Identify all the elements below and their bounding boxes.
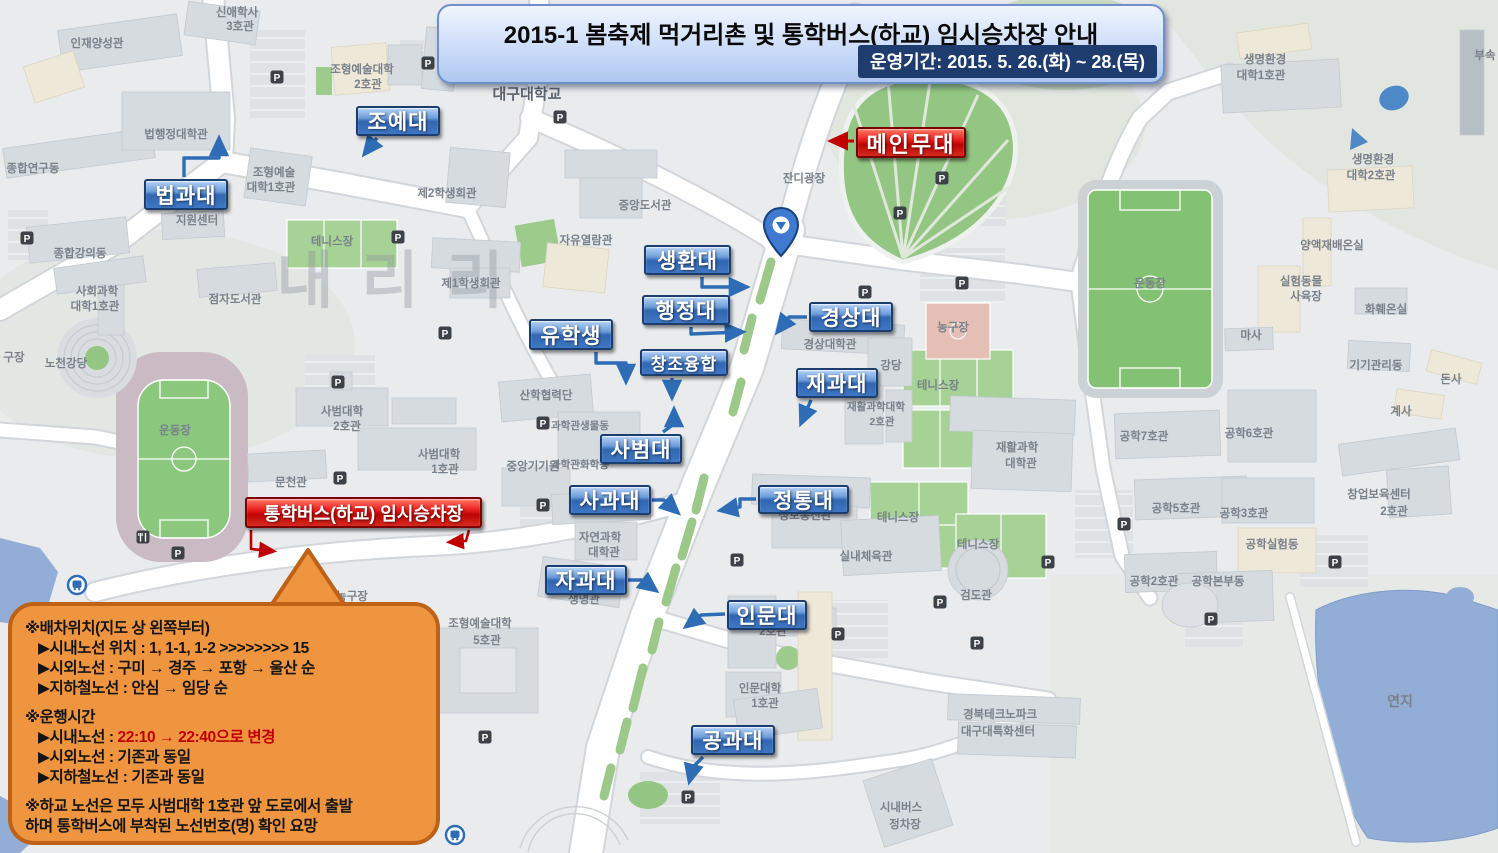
festival-map-poster: 내리리대구대학교인재양성관신애학사3호관종합연구동법행정대학관조형예술대학2호관… xyxy=(0,0,1498,853)
map-place-label: 대구대학교 xyxy=(492,86,561,103)
map-place-label: 공학6호관 xyxy=(1225,426,1274,440)
parking-icon: P xyxy=(934,596,947,609)
svg-text:P: P xyxy=(24,234,31,245)
parking-icon: P xyxy=(332,376,345,389)
notice-line: ▶시외노선 : 기존과 동일 xyxy=(25,748,426,768)
faculty-label: 창조융합 xyxy=(640,349,728,376)
map-place-label: 양액재배온실 xyxy=(1300,238,1363,252)
map-place-label: 경상대학관 xyxy=(804,337,857,351)
map-place-label: 2호관 xyxy=(333,419,361,433)
faculty-label: 재과대 xyxy=(796,368,878,398)
svg-text:P: P xyxy=(897,209,904,220)
map-place-label: 자유열람관 xyxy=(560,233,613,247)
notice-text: ▶시외노선 : 기존과 동일 xyxy=(38,749,191,766)
map-place-label: 생명환경 xyxy=(1352,152,1394,166)
main-stage-label: 메인무대 xyxy=(856,127,966,158)
map-place-label: 사회과학 xyxy=(76,284,119,298)
map-place-label: 시내버스 xyxy=(880,800,923,814)
notice-highlight: 22:10 → 22:40으로 변경 xyxy=(118,729,276,746)
map-place-label: 점자도서관 xyxy=(209,292,262,306)
map-place-label: 부속 xyxy=(1474,49,1496,62)
faculty-label: 생환대 xyxy=(644,245,731,275)
map-place-label: 대학관 xyxy=(1005,456,1037,470)
map-place-label: 사범대학 xyxy=(418,447,461,461)
map-place-label: 자연과학 xyxy=(579,530,622,544)
svg-text:P: P xyxy=(939,174,946,185)
parking-icon: P xyxy=(1118,518,1131,531)
map-place-label: 대구대특화센터 xyxy=(961,724,1035,738)
map-place-label: 산학협력단 xyxy=(520,388,573,402)
map-place-label: 1호관 xyxy=(431,462,459,476)
map-place-label: 사범대학 xyxy=(321,404,364,418)
restaurant-icon xyxy=(137,531,150,544)
map-place-label: 조형예술대학 xyxy=(448,616,512,630)
map-place-label: 과학관생물동 xyxy=(551,419,609,432)
notice-line: 하며 통학버스에 부착된 노선번호(명) 확인 요망 xyxy=(25,817,426,837)
notice-line: ▶시내노선 위치 : 1, 1-1, 1-2 >>>>>>>> 15 xyxy=(25,639,426,659)
map-place-label: 노천강당 xyxy=(45,356,88,370)
svg-text:P: P xyxy=(425,59,432,70)
notice-line: ※하교 노선은 모두 사범대학 1호관 앞 도로에서 출발 xyxy=(25,797,426,817)
operation-period: 운영기간: 2015. 5. 26.(화) ~ 28.(목) xyxy=(858,45,1157,78)
parking-icon: P xyxy=(956,277,969,290)
map-place-label: 돈사 xyxy=(1440,372,1462,386)
notice-line: ▶지하철노선 : 기존과 동일 xyxy=(25,768,426,788)
notice-text: ※운행시간 xyxy=(25,709,95,726)
map-place-label: 2호관 xyxy=(354,77,382,91)
map-place-label: 운동장 xyxy=(159,423,191,437)
parking-icon: P xyxy=(271,71,284,84)
svg-text:P: P xyxy=(685,793,692,804)
notice-line: ▶지하철노선 : 안심 → 임당 순 xyxy=(25,679,426,699)
parking-icon: P xyxy=(21,232,34,245)
parking-icon: P xyxy=(1205,613,1218,626)
map-place-label: 운동장 xyxy=(1134,276,1166,290)
svg-text:P: P xyxy=(937,598,944,609)
map-place-label: 1호관 xyxy=(751,696,779,710)
svg-text:P: P xyxy=(1332,558,1339,569)
map-place-label: 강당 xyxy=(880,358,902,372)
svg-text:P: P xyxy=(395,233,402,244)
svg-text:P: P xyxy=(974,639,981,650)
map-place-label: 공학2호관 xyxy=(1130,574,1179,588)
parking-icon: P xyxy=(392,231,405,244)
svg-text:P: P xyxy=(835,630,842,641)
map-place-label: 테니스장 xyxy=(311,234,354,248)
map-place-label: 검도관 xyxy=(960,588,992,602)
notice-text: ▶시외노선 : 구미 → 경주 → 포항 → 울산 순 xyxy=(38,660,315,677)
map-place-label: 2호관 xyxy=(1380,504,1408,518)
map-place-label: 인재양성관 xyxy=(71,36,124,50)
parking-icon: P xyxy=(422,57,435,70)
map-place-label: 생명환경 xyxy=(1244,52,1286,66)
map-place-label: 연지 xyxy=(1387,693,1413,709)
map-place-label: 실내체육관 xyxy=(840,549,893,563)
map-place-label: 테니스장 xyxy=(957,537,1000,551)
map-place-label: 제1학생회관 xyxy=(441,276,501,290)
map-place-label: 계사 xyxy=(1390,404,1412,418)
svg-text:P: P xyxy=(1208,615,1215,626)
map-place-label: 마사 xyxy=(1240,328,1262,342)
svg-text:P: P xyxy=(959,279,966,290)
svg-text:P: P xyxy=(1045,558,1052,569)
map-place-label: 공학5호관 xyxy=(1152,501,1201,515)
map-place-label: 신애학사 xyxy=(216,5,259,19)
map-place-label: 공학7호관 xyxy=(1120,429,1169,443)
parking-icon: P xyxy=(1042,556,1055,569)
title-banner: 2015-1 봄축제 먹거리촌 및 통학버스(하교) 임시승차장 안내 운영기간… xyxy=(437,4,1165,84)
parking-icon: P xyxy=(554,111,567,124)
map-place-label: 경북테크노파크 xyxy=(963,707,1037,721)
notice-text: ▶지하철노선 : 안심 → 임당 순 xyxy=(38,680,228,697)
map-place-label: 종합연구동 xyxy=(7,161,60,175)
svg-text:P: P xyxy=(557,113,564,124)
faculty-label: 정통대 xyxy=(758,485,849,514)
map-place-label: 종합강의동 xyxy=(54,246,107,260)
map-place-label: 농구장 xyxy=(937,320,969,334)
notice-line: ※배차위치(지도 상 왼쪽부터) xyxy=(25,619,426,639)
parking-icon: P xyxy=(439,327,452,340)
map-place-label: 지원센터 xyxy=(176,213,218,227)
svg-text:P: P xyxy=(540,419,547,430)
map-place-label: 기기관리동 xyxy=(1350,358,1403,372)
map-place-label: 대학1호관 xyxy=(1237,68,1286,82)
map-place-label: 공학실험동 xyxy=(1246,537,1299,551)
map-place-label: 조형예술 xyxy=(253,165,296,179)
parking-icon: P xyxy=(731,554,744,567)
map-place-label: 잔디광장 xyxy=(783,171,826,185)
notice-text: ※배차위치(지도 상 왼쪽부터) xyxy=(25,620,209,637)
map-place-label: 재활과학대학 xyxy=(847,400,905,413)
faculty-label: 조예대 xyxy=(356,106,440,136)
parking-icon: P xyxy=(537,499,550,512)
map-place-label: 테니스장 xyxy=(917,378,960,392)
map-place-label: 실험동물 xyxy=(1280,274,1323,288)
notice-line: ※운행시간 xyxy=(25,708,426,728)
faculty-label: 사과대 xyxy=(569,485,651,515)
transit-stop-icon xyxy=(446,826,464,844)
notice-text: ▶시내노선 : xyxy=(38,729,118,746)
map-place-label: 제2학생회관 xyxy=(417,186,477,200)
map-place-label: 구장 xyxy=(3,350,25,364)
map-place-label: 대학2호관 xyxy=(1347,168,1396,182)
parking-icon: P xyxy=(971,637,984,650)
parking-icon: P xyxy=(1329,556,1342,569)
svg-text:P: P xyxy=(442,329,449,340)
map-place-label: 대학1호관 xyxy=(71,299,120,313)
map-place-label: 문천관 xyxy=(275,475,307,489)
svg-text:P: P xyxy=(540,501,547,512)
map-place-label: 대학관 xyxy=(588,545,620,559)
parking-icon: P xyxy=(894,207,907,220)
svg-text:P: P xyxy=(1121,520,1128,531)
parking-icon: P xyxy=(479,731,492,744)
parking-icon: P xyxy=(172,547,185,560)
notice-bubble: ※배차위치(지도 상 왼쪽부터)▶시내노선 위치 : 1, 1-1, 1-2 >… xyxy=(8,602,440,845)
map-place-label: 5호관 xyxy=(473,633,501,647)
svg-text:P: P xyxy=(862,288,869,299)
parking-icon: P xyxy=(936,172,949,185)
svg-text:P: P xyxy=(175,549,182,560)
map-place-label: 인문대학 xyxy=(739,681,782,695)
map-place-label: 공학본부동 xyxy=(1192,574,1245,588)
parking-icon: P xyxy=(859,286,872,299)
map-place-label: 3호관 xyxy=(226,19,254,33)
map-place-label: 창업보육센터 xyxy=(1347,487,1410,501)
bus-pickup-label: 통학버스(하교) 임시승차장 xyxy=(245,497,482,528)
faculty-label: 유학생 xyxy=(529,319,613,350)
svg-text:P: P xyxy=(274,73,281,84)
transit-stop-icon xyxy=(68,576,86,594)
faculty-label: 자과대 xyxy=(545,565,627,595)
map-place-label: 조형예술대학 xyxy=(330,62,394,76)
notice-line: ▶시내노선 : 22:10 → 22:40으로 변경 xyxy=(25,728,426,748)
parking-icon: P xyxy=(334,472,347,485)
map-place-label: 사육장 xyxy=(1290,289,1322,303)
svg-text:P: P xyxy=(482,733,489,744)
map-place-label: 테니스장 xyxy=(877,510,920,524)
notice-text: ▶시내노선 위치 : 1, 1-1, 1-2 >>>>>>>> 15 xyxy=(38,640,309,657)
faculty-label: 인문대 xyxy=(727,600,807,630)
map-place-label: 법행정대학관 xyxy=(144,127,208,141)
map-place-label: 정차장 xyxy=(889,817,921,831)
map-place-label: 화훼온실 xyxy=(1365,302,1407,316)
parking-icon: P xyxy=(682,791,695,804)
parking-icon: P xyxy=(537,417,550,430)
faculty-label: 경상대 xyxy=(809,302,893,332)
map-place-label: 대학1호관 xyxy=(247,180,296,194)
notice-text: ▶지하철노선 : 기존과 동일 xyxy=(38,769,205,786)
notice-text: ※하교 노선은 모두 사범대학 1호관 앞 도로에서 출발 xyxy=(25,798,352,815)
notice-text: 하며 통학버스에 부착된 노선번호(명) 확인 요망 xyxy=(25,818,317,835)
map-place-label: 공학3호관 xyxy=(1220,506,1269,520)
svg-text:P: P xyxy=(335,378,342,389)
notice-body: ※배차위치(지도 상 왼쪽부터)▶시내노선 위치 : 1, 1-1, 1-2 >… xyxy=(25,619,426,837)
faculty-label: 공과대 xyxy=(691,725,775,755)
faculty-label: 행정대 xyxy=(642,295,730,325)
parking-icon: P xyxy=(832,628,845,641)
notice-line: ▶시외노선 : 구미 → 경주 → 포항 → 울산 순 xyxy=(25,659,426,679)
svg-text:P: P xyxy=(337,474,344,485)
map-place-label: 2호관 xyxy=(869,415,894,428)
svg-text:P: P xyxy=(734,556,741,567)
faculty-label: 법과대 xyxy=(144,179,228,210)
map-place-label: 재활과학 xyxy=(996,440,1039,454)
faculty-label: 사범대 xyxy=(600,434,682,464)
map-place-label: 중앙도서관 xyxy=(619,198,672,212)
